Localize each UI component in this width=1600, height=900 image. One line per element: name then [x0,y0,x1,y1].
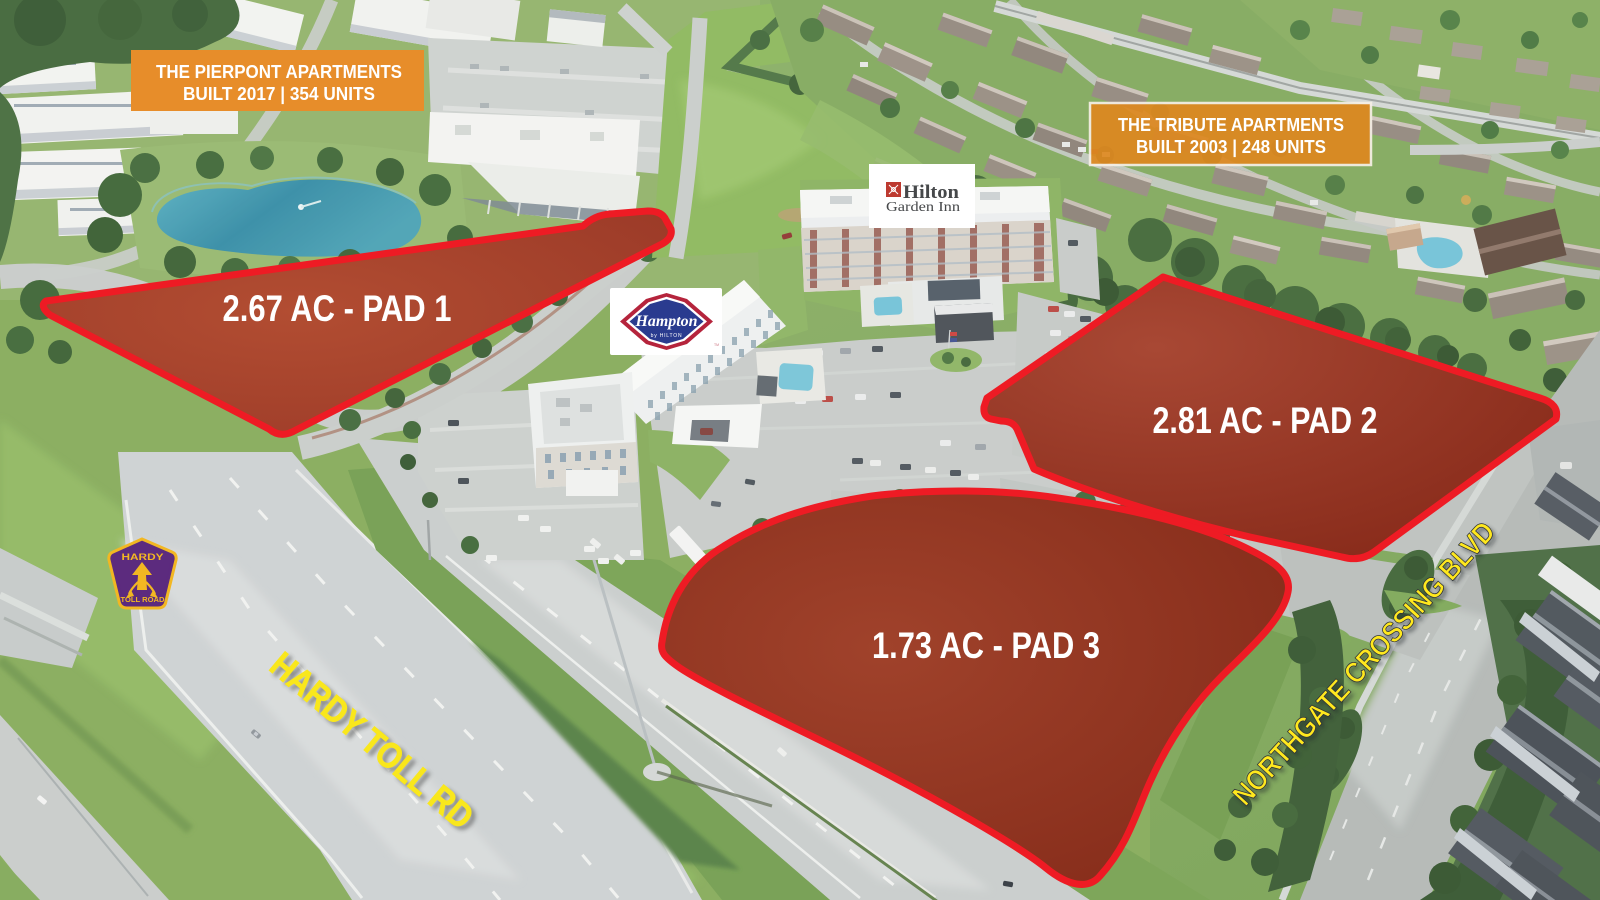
svg-text:TM: TM [714,343,719,347]
svg-text:1.73 AC - PAD 3: 1.73 AC - PAD 3 [872,625,1100,666]
svg-text:2.67 AC - PAD 1: 2.67 AC - PAD 1 [223,288,452,329]
svg-text:Hampton: Hampton [635,313,698,330]
svg-text:THE TRIBUTE APARTMENTS: THE TRIBUTE APARTMENTS [1118,115,1344,135]
svg-text:BUILT 2017 | 354 UNITS: BUILT 2017 | 354 UNITS [183,84,375,104]
svg-text:Garden Inn: Garden Inn [886,199,960,214]
svg-text:TOLL ROAD: TOLL ROAD [121,595,166,604]
svg-text:HARDY: HARDY [122,552,165,563]
svg-text:THE PIERPONT APARTMENTS: THE PIERPONT APARTMENTS [156,62,402,82]
svg-text:by HILTON: by HILTON [651,333,683,339]
svg-text:2.81 AC - PAD 2: 2.81 AC - PAD 2 [1153,400,1378,441]
svg-text:BUILT 2003 | 248 UNITS: BUILT 2003 | 248 UNITS [1136,137,1326,157]
